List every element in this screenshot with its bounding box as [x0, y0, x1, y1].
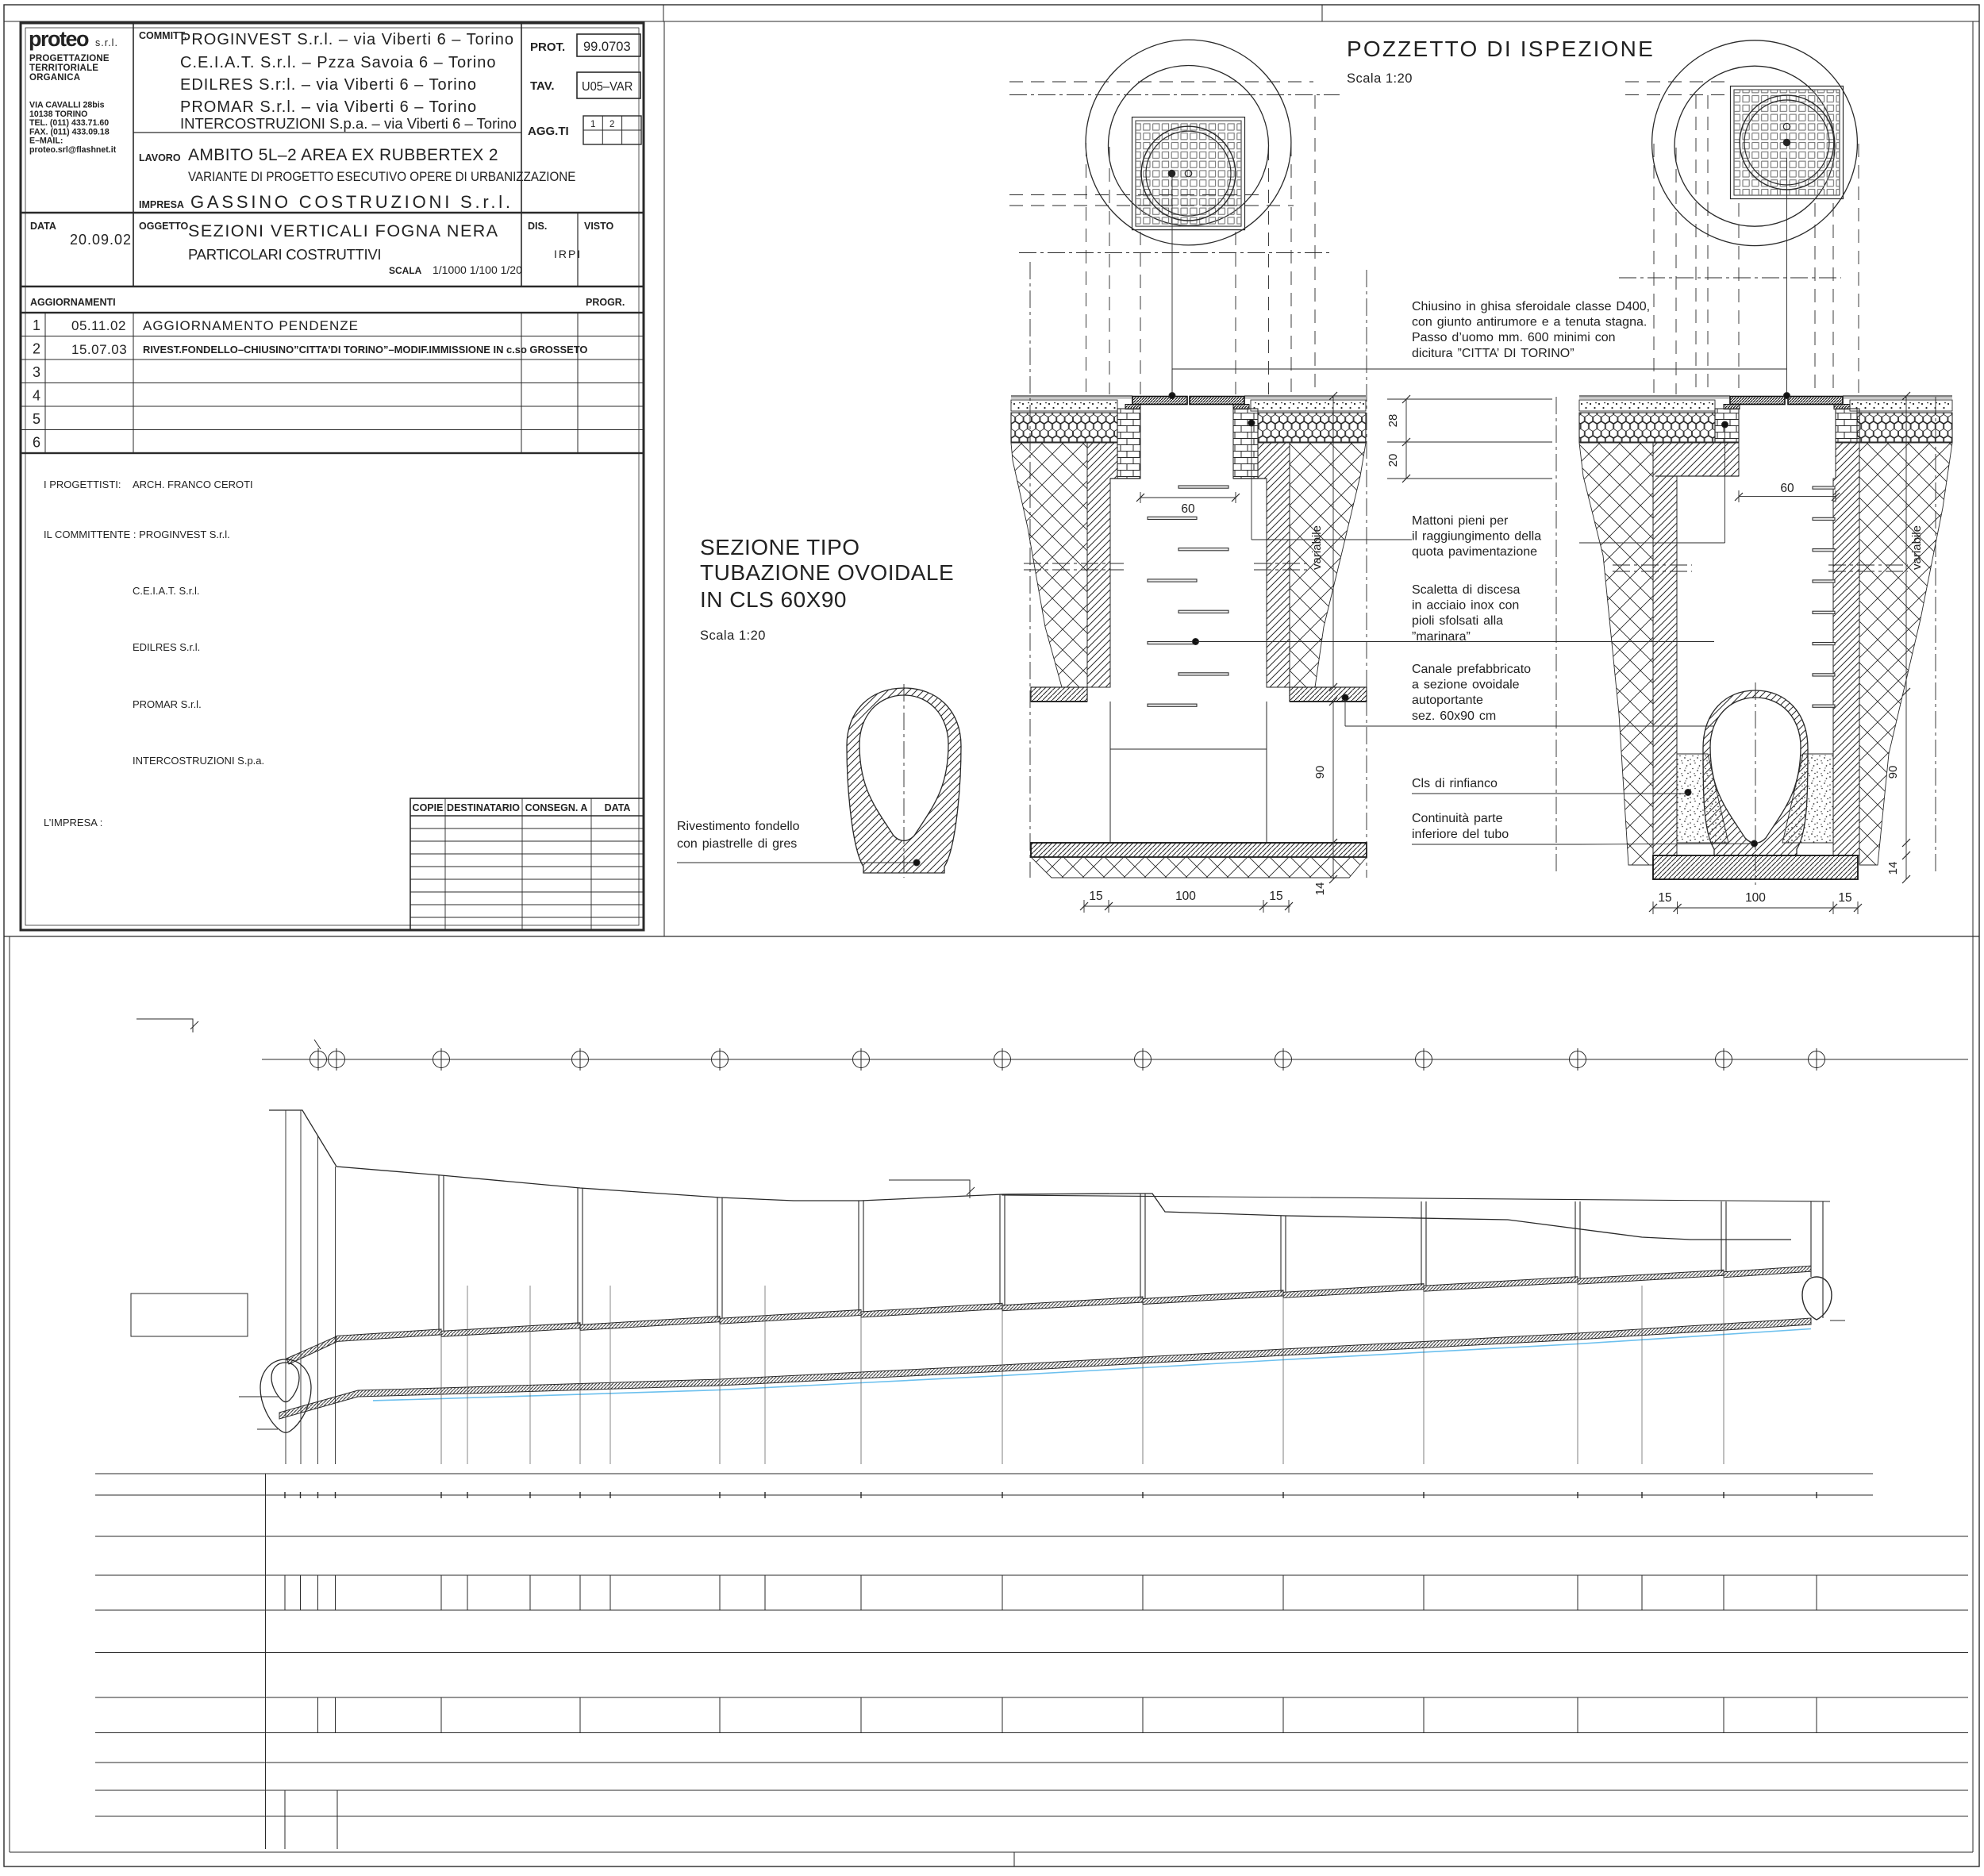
- svg-text:2: 2: [33, 341, 40, 357]
- svg-text:SCALA: SCALA: [389, 265, 422, 276]
- svg-text:proteo: proteo: [29, 27, 89, 51]
- svg-text:99.0703: 99.0703: [583, 40, 631, 54]
- svg-text:Passo d’uomo mm. 600 minim: Passo d’uomo mm. 600 minimi con: [1412, 331, 1615, 344]
- svg-text:AGGIORNAMENTI: AGGIORNAMENTI: [30, 297, 116, 308]
- svg-text:DIS.: DIS.: [528, 221, 547, 232]
- svg-text:SEZIONE TIPO: SEZIONE TIPO: [700, 535, 860, 559]
- svg-text:sez. 60x90 cm: sez. 60x90 cm: [1412, 709, 1496, 723]
- svg-text:Scala 1:20: Scala 1:20: [700, 629, 766, 643]
- svg-text:14: 14: [1886, 862, 1900, 875]
- svg-text:DATA: DATA: [605, 802, 631, 813]
- svg-text:28: 28: [1386, 414, 1400, 428]
- svg-text:VISTO: VISTO: [584, 221, 614, 232]
- svg-text:05.11.02: 05.11.02: [71, 318, 126, 333]
- svg-text:15: 15: [1838, 891, 1851, 905]
- svg-text:RIVEST.FONDELLO–CHIUSINO”CITTA: RIVEST.FONDELLO–CHIUSINO”CITTA’DI TORINO…: [143, 344, 587, 356]
- svg-text:a sezione ovoidale: a sezione ovoidale: [1412, 679, 1520, 692]
- svg-text:E–MAIL:: E–MAIL:: [29, 136, 63, 146]
- svg-text:POZZETTO DI ISPEZIONE: POZZETTO DI ISPEZIONE: [1347, 37, 1655, 61]
- svg-text:PROMAR S.r.l. – via Vibert: PROMAR S.r.l. – via Viberti 6 – Torino: [180, 98, 477, 116]
- svg-text:LAVORO: LAVORO: [139, 152, 181, 163]
- svg-text:20: 20: [1386, 454, 1400, 467]
- svg-text:IN CLS 60X90: IN CLS 60X90: [700, 587, 847, 612]
- svg-text:15: 15: [1089, 890, 1102, 903]
- svg-text:L’IMPRESA :: L’IMPRESA :: [44, 817, 102, 828]
- svg-text:TUBAZIONE OVOIDALE: TUBAZIONE OVOIDALE: [700, 560, 954, 585]
- svg-text:VARIANTE DI PROGETTO ESECUT: VARIANTE DI PROGETTO ESECUTIVO OPERE DI …: [188, 170, 575, 184]
- svg-text:Continuità parte: Continuità parte: [1412, 812, 1503, 825]
- svg-text:100: 100: [1175, 890, 1196, 903]
- svg-text:s.r.l.: s.r.l.: [95, 37, 118, 48]
- svg-text:1/1000 1/100 1/20: 1/1000 1/100 1/20: [433, 263, 522, 276]
- svg-text:il raggiungimento della: il raggiungimento della: [1412, 530, 1541, 544]
- svg-text:PROGINVEST S.r.l. – via Vi: PROGINVEST S.r.l. – via Viberti 6 – Tori…: [180, 31, 514, 48]
- svg-text:100: 100: [1745, 891, 1766, 905]
- svg-text:con piastrelle di gres: con piastrelle di gres: [677, 837, 797, 851]
- svg-text:DESTINATARIO: DESTINATARIO: [447, 802, 520, 813]
- svg-text:15: 15: [1658, 891, 1671, 905]
- svg-text:proteo.srl@flashnet.it: proteo.srl@flashnet.it: [29, 145, 117, 155]
- svg-text:pioli sfolsati alla: pioli sfolsati alla: [1412, 614, 1503, 628]
- svg-text:in acciaio inox con: in acciaio inox con: [1412, 599, 1519, 613]
- svg-text:PROMAR S.r.l.: PROMAR S.r.l.: [133, 698, 202, 710]
- svg-text:PARTICOLARI COSTRUTTIVI: PARTICOLARI COSTRUTTIVI: [188, 246, 381, 263]
- svg-text:AGG.TI: AGG.TI: [528, 125, 569, 138]
- svg-text:INTERCOSTRUZIONI S.p.a. – v: INTERCOSTRUZIONI S.p.a. – via Viberti 6 …: [180, 115, 517, 132]
- svg-text:COPIE: COPIE: [413, 802, 444, 813]
- svg-text:90: 90: [1886, 766, 1900, 779]
- svg-text:EDILRES S.r:l. – via Viber: EDILRES S.r:l. – via Viberti 6 – Torino: [180, 76, 477, 94]
- svg-text:20.09.02: 20.09.02: [70, 232, 132, 248]
- svg-text:Chiusino in ghisa sferoidal: Chiusino in ghisa sferoidale classe D400…: [1412, 300, 1650, 313]
- svg-text:ORGANICA: ORGANICA: [29, 73, 80, 83]
- svg-text:AMBITO 5L–2 AREA EX RUBBER: AMBITO 5L–2 AREA EX RUBBERTEX 2: [188, 146, 498, 164]
- svg-text:VIA CAVALLI 28bis: VIA CAVALLI 28bis: [29, 101, 105, 110]
- svg-text:variabile: variabile: [1910, 525, 1924, 570]
- svg-text:inferiore del tubo: inferiore del tubo: [1412, 828, 1509, 841]
- svg-text:15.07.03: 15.07.03: [71, 342, 127, 357]
- svg-text:90: 90: [1313, 766, 1327, 779]
- svg-text:SEZIONI VERTICALI FOGNA NER: SEZIONI VERTICALI FOGNA NERA: [188, 221, 499, 240]
- svg-text:Scaletta di discesa: Scaletta di discesa: [1412, 583, 1521, 597]
- svg-text:dicitura ”CITTA’ DI TORINO”: dicitura ”CITTA’ DI TORINO”: [1412, 347, 1575, 360]
- svg-text:PROGETTAZIONE: PROGETTAZIONE: [29, 54, 110, 63]
- svg-text:TAV.: TAV.: [530, 79, 555, 93]
- svg-text:IL COMMITTENTE : PROGINVEST: IL COMMITTENTE : PROGINVEST S.r.l.: [44, 529, 230, 540]
- svg-text:Mattoni pieni per: Mattoni pieni per: [1412, 514, 1509, 528]
- svg-text:ARCH. FRANCO CEROTI: ARCH. FRANCO CEROTI: [133, 479, 253, 490]
- svg-text:C.E.I.A.T. S.r.l.: C.E.I.A.T. S.r.l.: [133, 585, 200, 597]
- svg-text:I PROGETTISTI:: I PROGETTISTI:: [44, 479, 121, 490]
- svg-text:10138 TORINO: 10138 TORINO: [29, 110, 87, 119]
- svg-text:FAX. (011) 433.09.18: FAX. (011) 433.09.18: [29, 127, 110, 136]
- svg-text:AGGIORNAMENTO PENDENZE: AGGIORNAMENTO PENDENZE: [143, 318, 359, 333]
- svg-text:INTERCOSTRUZIONI S.p.a.: INTERCOSTRUZIONI S.p.a.: [133, 755, 264, 767]
- svg-text:15: 15: [1269, 890, 1282, 903]
- svg-text:4: 4: [33, 388, 40, 404]
- svg-text:EDILRES S.r.l.: EDILRES S.r.l.: [133, 641, 200, 653]
- svg-text:60: 60: [1181, 502, 1195, 516]
- svg-text:DATA: DATA: [30, 221, 56, 232]
- svg-text:OGGETTO: OGGETTO: [139, 221, 189, 232]
- svg-text:Cls di rinfianco: Cls di rinfianco: [1412, 777, 1498, 790]
- svg-text:6: 6: [33, 435, 40, 451]
- svg-text:IRPI: IRPI: [554, 248, 582, 260]
- svg-text:2: 2: [609, 120, 614, 129]
- svg-text:CONSEGN. A: CONSEGN. A: [525, 802, 588, 813]
- svg-text:Rivestimento fondello: Rivestimento fondello: [677, 820, 800, 833]
- svg-text:IMPRESA: IMPRESA: [139, 199, 184, 210]
- svg-text:1: 1: [590, 120, 595, 129]
- svg-text:quota pavimentazione: quota pavimentazione: [1412, 545, 1537, 559]
- svg-text:1: 1: [33, 317, 40, 333]
- svg-text:TERRITORIALE: TERRITORIALE: [29, 63, 98, 73]
- svg-text:5: 5: [33, 411, 40, 427]
- svg-text:Canale prefabbricato: Canale prefabbricato: [1412, 663, 1531, 676]
- svg-text:14: 14: [1313, 882, 1327, 896]
- svg-text:variabile: variabile: [1310, 525, 1324, 570]
- svg-text:autoportante: autoportante: [1412, 694, 1483, 707]
- svg-text:con giunto antirumore e a: con giunto antirumore e a tenuta stagna.: [1412, 316, 1647, 329]
- svg-text:PROT.: PROT.: [530, 40, 565, 54]
- svg-text:60: 60: [1780, 482, 1794, 495]
- svg-text:PROGR.: PROGR.: [586, 297, 625, 308]
- svg-text:3: 3: [33, 364, 40, 380]
- svg-text:U05–VAR: U05–VAR: [582, 80, 632, 94]
- svg-text:C.E.I.A.T. S.r.l. – Pzza S: C.E.I.A.T. S.r.l. – Pzza Savoia 6 – Tori…: [180, 54, 496, 71]
- svg-text:GASSINO COSTRUZIONI S.r.l.: GASSINO COSTRUZIONI S.r.l.: [190, 192, 513, 212]
- svg-text:Scala 1:20: Scala 1:20: [1347, 71, 1413, 86]
- svg-text:TEL. (011) 433.71.60: TEL. (011) 433.71.60: [29, 118, 109, 128]
